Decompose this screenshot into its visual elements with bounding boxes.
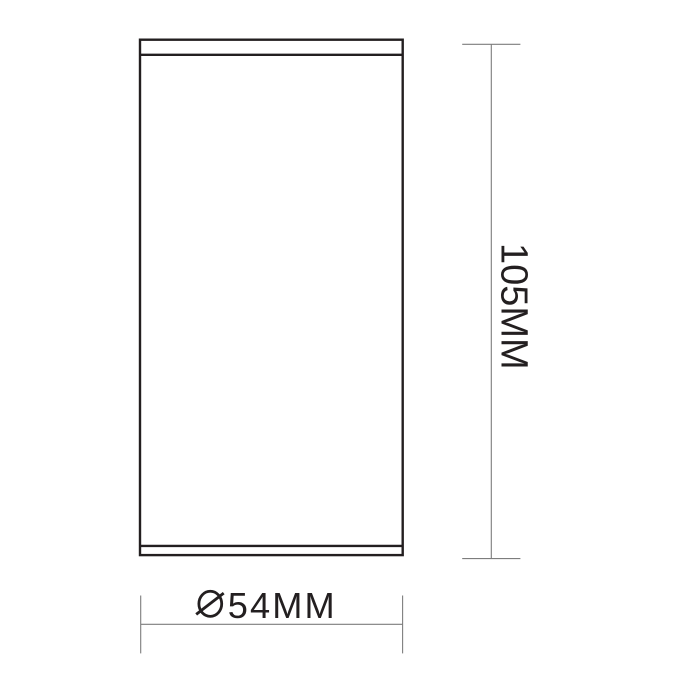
svg-text:105MM: 105MM: [492, 243, 534, 370]
svg-text:54MM: 54MM: [228, 585, 337, 626]
